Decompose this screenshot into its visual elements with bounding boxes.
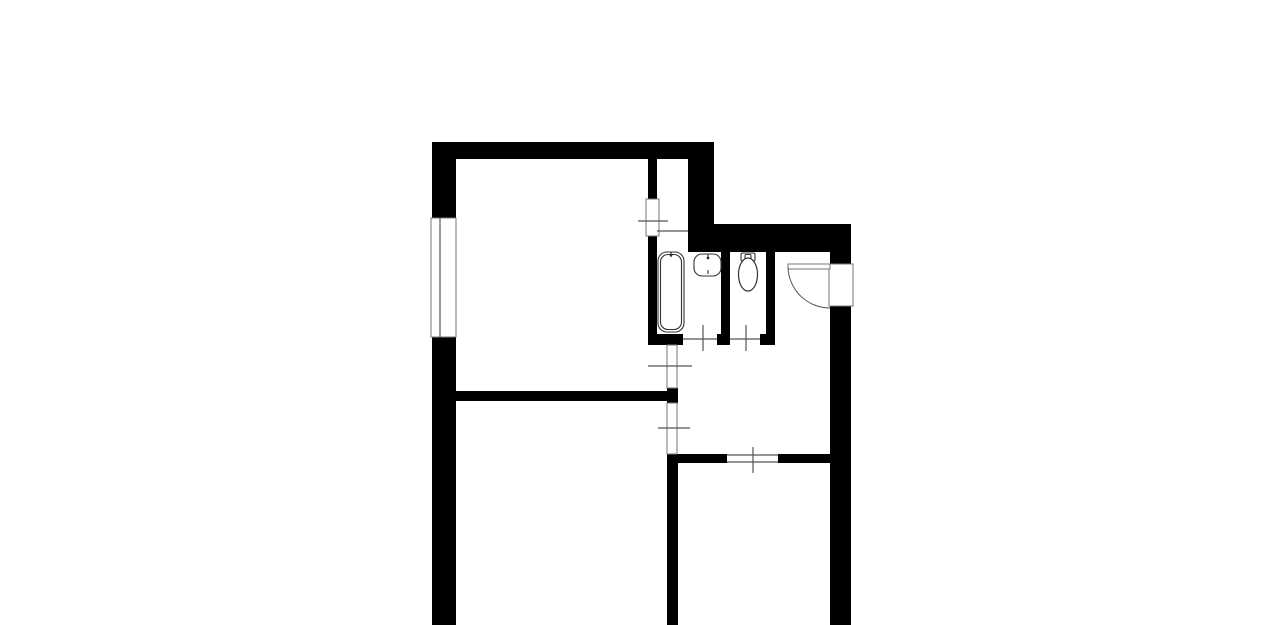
hall-bottom-wall-right (778, 454, 830, 463)
top-wall (432, 142, 714, 159)
right-wall-lower (830, 306, 851, 625)
entry-door-swing-arc (788, 267, 830, 308)
wc-right-wall (766, 252, 775, 345)
bathroom-bottom-wall-mid (717, 334, 730, 345)
floorplan-page (0, 0, 1280, 625)
middle-lower-wall (667, 454, 678, 625)
wc-left-wall (721, 252, 730, 334)
bathroom-top-wall (688, 224, 851, 252)
bathtub-tap-dot (670, 254, 673, 257)
entry-door-leaf (788, 264, 830, 269)
room1-bathroom-wall (648, 236, 657, 334)
left-wall-lower (432, 337, 456, 625)
entry-door-opening (829, 264, 853, 306)
right-wall-upper (830, 252, 851, 264)
bathroom-bottom-wall-left (648, 334, 683, 345)
toilet-bowl (739, 258, 758, 291)
room1-closet-wall (648, 159, 657, 199)
room-divider-wall (456, 391, 667, 401)
bathtub-outer (658, 252, 684, 332)
left-wall-upper (432, 142, 456, 218)
floor-plan-drawing (0, 0, 1280, 625)
window-left-wall (431, 218, 456, 337)
sink-tap-dot (707, 257, 710, 260)
divider-wall-nub (667, 388, 678, 403)
